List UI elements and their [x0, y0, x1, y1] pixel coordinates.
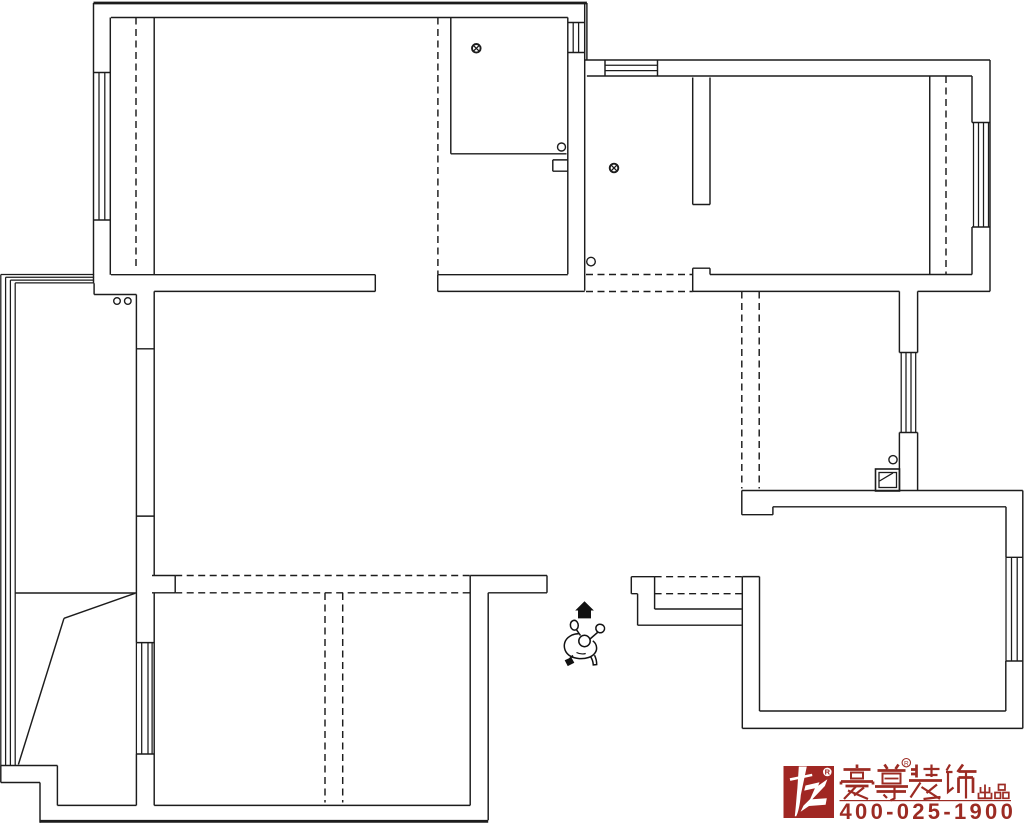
svg-text:400-025-1900: 400-025-1900	[840, 799, 1017, 824]
svg-text:R: R	[904, 761, 909, 768]
svg-text:R: R	[825, 768, 831, 777]
